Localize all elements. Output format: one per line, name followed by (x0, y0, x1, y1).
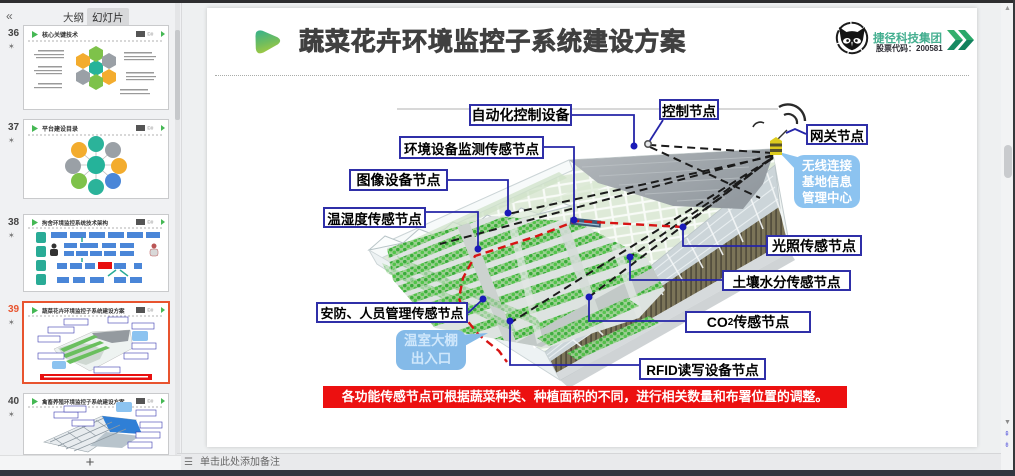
svg-text:©#: ©# (147, 219, 154, 226)
svg-text:核心关键技术: 核心关键技术 (42, 31, 78, 39)
svg-text:©#: ©# (147, 307, 154, 314)
svg-text:拘舍环境监控系统技术架构: 拘舍环境监控系统技术架构 (42, 219, 109, 227)
svg-text:©#: ©# (147, 125, 154, 132)
svg-text:蔬菜花卉环境监控子系统建设方案: 蔬菜花卉环境监控子系统建设方案 (42, 307, 125, 315)
svg-text:平台建设目录: 平台建设目录 (42, 125, 78, 133)
svg-text:禽畜养殖环境监控子系统建设方案: 禽畜养殖环境监控子系统建设方案 (41, 398, 125, 406)
svg-text:©#: ©# (147, 398, 154, 405)
svg-text:©#: ©# (147, 31, 154, 38)
